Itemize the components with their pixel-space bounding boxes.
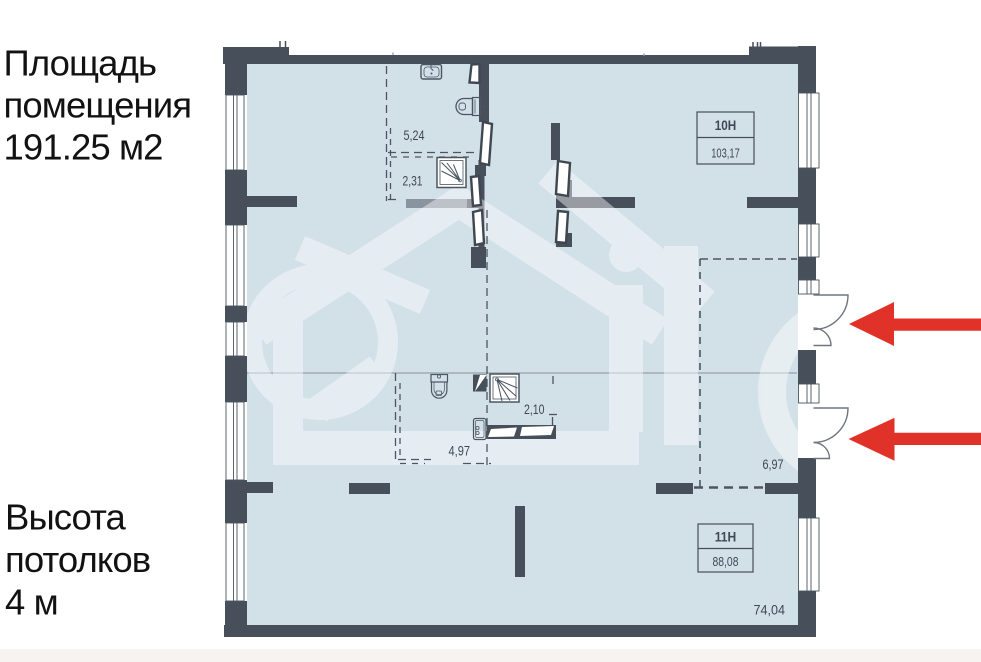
svg-text:2,31: 2,31 (403, 174, 423, 189)
svg-text:Высота: Высота (5, 497, 127, 538)
svg-text:103,17: 103,17 (711, 146, 740, 161)
svg-text:74,04: 74,04 (754, 603, 786, 618)
svg-text:4 м: 4 м (5, 582, 58, 623)
svg-text:11Н: 11Н (715, 530, 737, 545)
svg-text:10Н: 10Н (715, 118, 737, 133)
svg-text:5,24: 5,24 (404, 128, 425, 143)
svg-text:потолков: потолков (5, 539, 150, 580)
svg-text:помещения: помещения (4, 85, 192, 126)
svg-text:88,08: 88,08 (713, 554, 739, 569)
svg-text:6,97: 6,97 (763, 457, 784, 472)
svg-text:4,97: 4,97 (449, 444, 471, 459)
svg-text:2,10: 2,10 (524, 402, 545, 417)
svg-text:Площадь: Площадь (4, 43, 157, 84)
svg-text:191.25 м2: 191.25 м2 (4, 127, 163, 168)
